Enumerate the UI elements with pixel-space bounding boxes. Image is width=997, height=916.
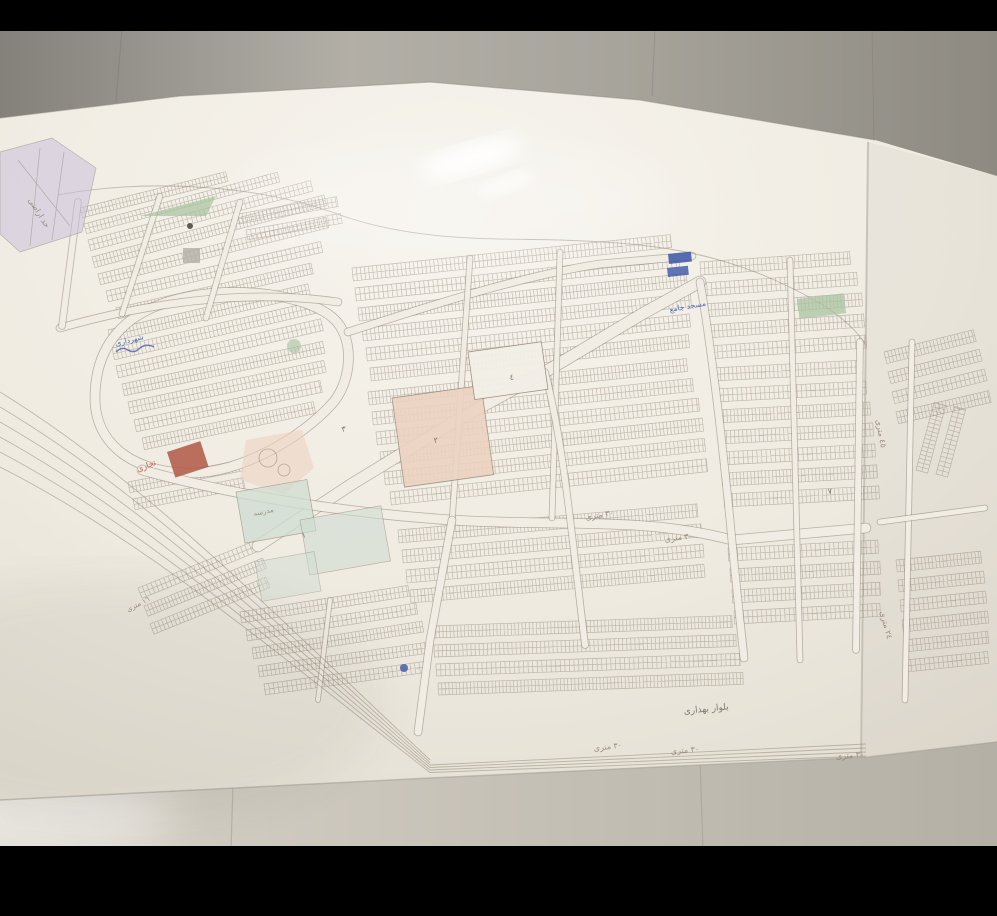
- blue-dot: [400, 664, 408, 672]
- white-block: [468, 342, 548, 400]
- green-circle: [287, 339, 301, 353]
- pink-block: [392, 385, 494, 487]
- letterbox-bar-top: [0, 0, 997, 31]
- map-photo-canvas: ٣٠ مترى ٣٠ مترى ٣٠ مترى ٣٠ مترى ٣٠ مترى …: [0, 0, 997, 916]
- street-surface: [856, 342, 860, 650]
- gray-block: [183, 248, 200, 263]
- letterbox-bar-bottom: [0, 846, 997, 916]
- photo-of-map: ٣٠ مترى ٣٠ مترى ٣٠ مترى ٣٠ مترى ٣٠ مترى …: [0, 0, 997, 916]
- dark-dot: [187, 223, 193, 229]
